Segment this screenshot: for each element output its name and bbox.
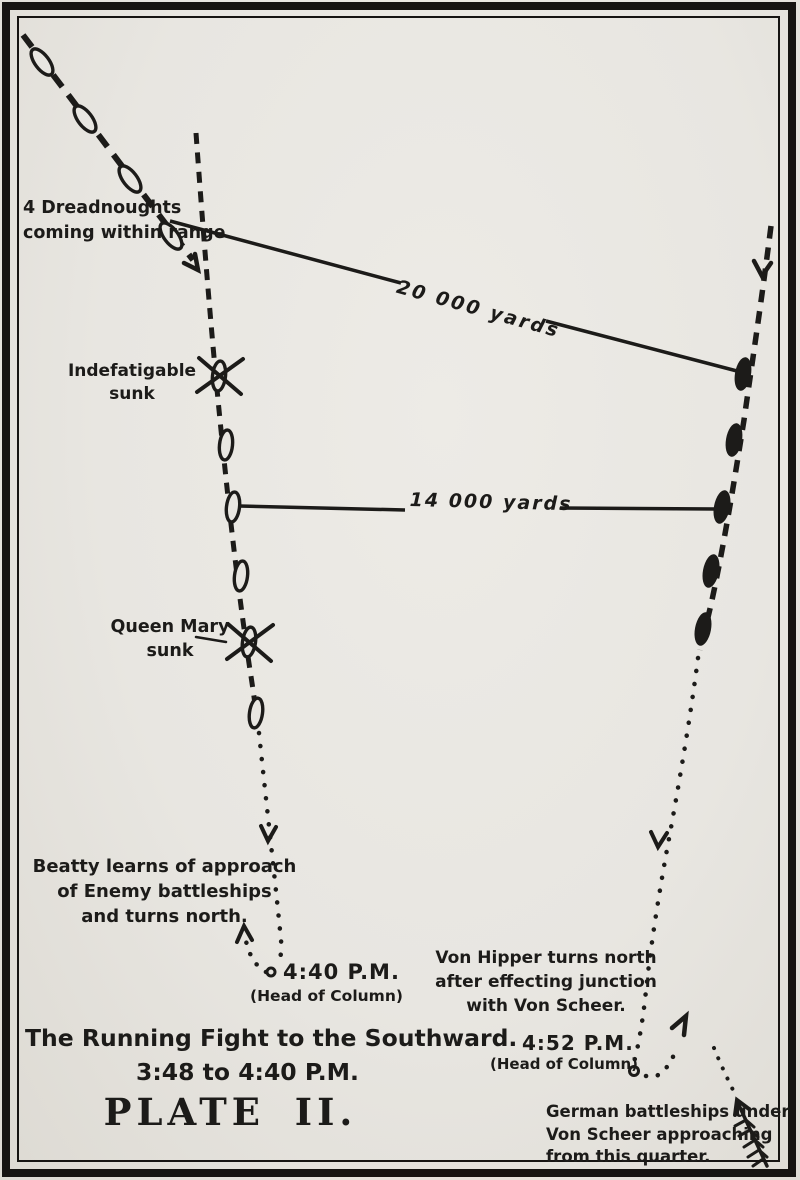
indefatigable-sunk-note: Indefatigable sunk	[62, 360, 202, 406]
queen-mary-sunk-note: Queen Mary sunk	[100, 615, 240, 663]
note-line: from this quarter.	[546, 1146, 790, 1169]
note-line: and turns north.	[17, 904, 312, 929]
note-line: Queen Mary	[100, 615, 240, 639]
note-line: sunk	[100, 639, 240, 663]
plate-number: PLATE II.	[88, 1090, 373, 1134]
plate-title: The Running Fight to the Southward. 3:48…	[25, 1021, 470, 1089]
plate-title-line2: 3:48 to 4:40 P.M.	[25, 1055, 470, 1089]
plate-page: { "colors": { "ink": "#1c1b19", "paper":…	[0, 0, 800, 1180]
beatty-note: Beatty learns of approach of Enemy battl…	[17, 854, 312, 929]
note-line: with Von Scheer.	[435, 994, 657, 1018]
dreadnoughts-note: 4 Dreadnoughts coming within range	[23, 196, 226, 246]
time-label-452: 4:52 P.M.	[522, 1031, 634, 1055]
plate-title-line1: The Running Fight to the Southward.	[25, 1021, 470, 1055]
head-of-column-caption-452: (Head of Column)	[490, 1055, 638, 1073]
note-line: coming within range	[23, 221, 226, 246]
note-line: Von Hipper turns north	[435, 946, 657, 970]
von-scheer-note: German battleships under Von Scheer appr…	[546, 1101, 790, 1169]
von-hipper-note: Von Hipper turns north after effecting j…	[435, 946, 657, 1018]
range-label-14000: 14 000 yards	[409, 489, 572, 515]
time-label-440: 4:40 P.M.	[283, 960, 400, 984]
note-line: after effecting junction	[435, 970, 657, 994]
head-of-column-caption-440: (Head of Column)	[250, 987, 403, 1005]
note-line: Beatty learns of approach	[17, 854, 312, 879]
note-line: German battleships under	[546, 1101, 790, 1124]
note-line: Von Scheer approaching	[546, 1124, 790, 1147]
note-line: of Enemy battleships	[17, 879, 312, 904]
note-line: sunk	[62, 383, 202, 406]
note-line: Indefatigable	[62, 360, 202, 383]
note-line: 4 Dreadnoughts	[23, 196, 226, 221]
